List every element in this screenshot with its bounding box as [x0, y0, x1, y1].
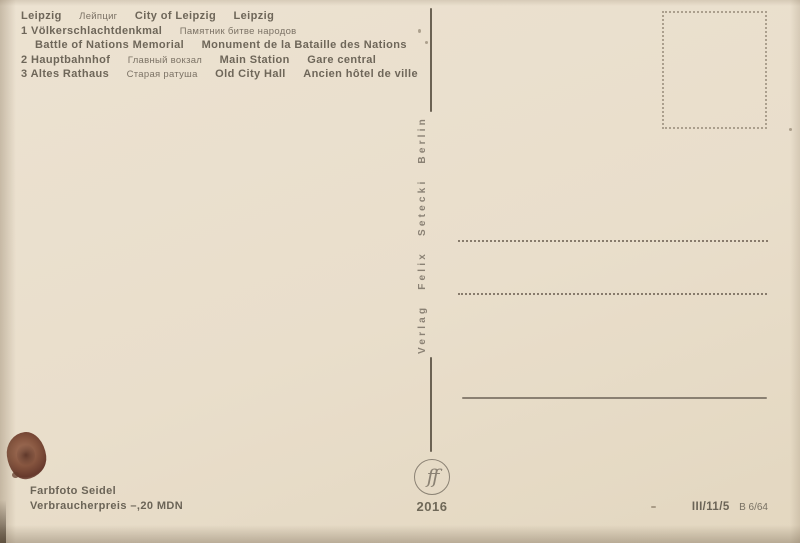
scan-speck [651, 506, 656, 508]
caption-line-1-translations: Battle of Nations Memorial Monument de l… [21, 37, 431, 52]
order-number: 2016 [404, 499, 460, 514]
corner-scan-mark [0, 500, 6, 543]
caption-text: Leipzig [234, 10, 275, 22]
scan-edge-shadow-right [790, 0, 800, 543]
caption-text-cyrillic: Старая ратуша [127, 69, 198, 80]
adhesive-stain [4, 430, 48, 481]
caption-text-cyrillic: Главный вокзал [128, 55, 202, 66]
scan-edge-shadow-bottom [0, 525, 800, 543]
footer-left-block: Farbfoto Seidel Verbraucherpreis –,20 MD… [30, 484, 183, 513]
publisher-logo-circle: ff [414, 459, 450, 495]
caption-line-2: 2 Hauptbahnhof Главный вокзал Main Stati… [21, 52, 431, 67]
caption-text-cyrillic: Лейпциг [79, 11, 117, 22]
address-line-2 [458, 293, 767, 295]
address-line-1 [458, 240, 768, 242]
scan-speck [425, 41, 428, 44]
caption-text: Leipzig [21, 10, 62, 22]
caption-text: 3 Altes Rathaus [21, 68, 109, 80]
caption-text: Ancien hôtel de ville [303, 68, 418, 80]
divider-line-lower [430, 357, 432, 452]
postcard-back: Leipzig Лейпциг City of Leipzig Leipzig … [0, 0, 800, 543]
address-line-3 [462, 397, 767, 399]
print-code-sub: B 6/64 [739, 502, 768, 513]
adhesive-stain-core [16, 443, 37, 467]
publisher-monogram-icon: ff [415, 460, 449, 492]
caption-block: Leipzig Лейпциг City of Leipzig Leipzig … [21, 8, 431, 81]
caption-line-title: Leipzig Лейпциг City of Leipzig Leipzig [21, 8, 431, 23]
caption-line-3: 3 Altes Rathaus Старая ратуша Old City H… [21, 66, 431, 81]
caption-text: Gare central [307, 54, 376, 66]
consumer-price: Verbraucherpreis –,20 MDN [30, 499, 183, 514]
publisher-imprint: Verlag Felix Setecki Berlin [417, 113, 431, 357]
stamp-box [662, 11, 767, 129]
scan-speck [418, 29, 421, 33]
scan-speck [789, 128, 792, 131]
divider-line-upper [430, 8, 432, 112]
print-code: III/11/5 [692, 501, 730, 513]
caption-text: Main Station [220, 54, 290, 66]
caption-text: 2 Hauptbahnhof [21, 54, 110, 66]
caption-line-1: 1 Völkerschlachtdenkmal Памятник битве н… [21, 23, 431, 38]
caption-text: Old City Hall [215, 68, 286, 80]
photo-credit: Farbfoto Seidel [30, 484, 183, 499]
caption-text: Battle of Nations Memorial [35, 39, 184, 51]
scan-edge-shadow-top [0, 0, 800, 6]
caption-text: 1 Völkerschlachtdenkmal [21, 25, 162, 37]
